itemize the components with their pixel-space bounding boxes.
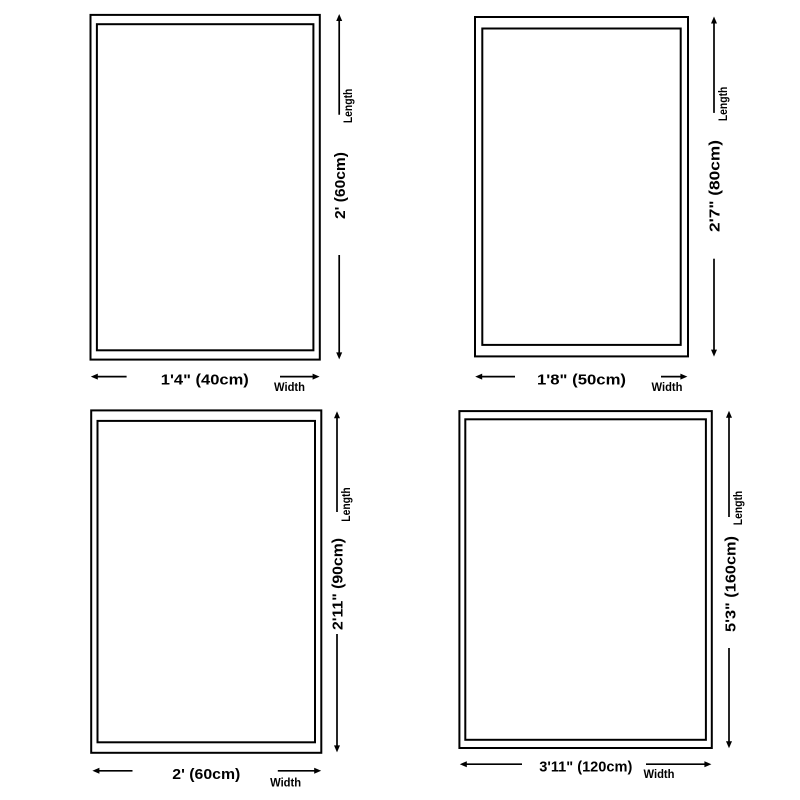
svg-text:Width: Width (644, 767, 675, 781)
svg-text:1'8" (50cm): 1'8" (50cm) (537, 371, 626, 388)
svg-text:Length: Length (731, 491, 745, 526)
svg-text:Length: Length (716, 87, 730, 122)
svg-text:Width: Width (270, 775, 301, 789)
svg-text:2' (60cm): 2' (60cm) (172, 766, 240, 783)
svg-text:1'4" (40cm): 1'4" (40cm) (161, 371, 249, 388)
svg-text:2'11" (90cm): 2'11" (90cm) (330, 538, 347, 630)
svg-text:Width: Width (274, 380, 305, 394)
svg-text:Width: Width (652, 380, 683, 394)
svg-text:2'7" (80cm): 2'7" (80cm) (707, 140, 724, 232)
svg-text:2' (60cm): 2' (60cm) (332, 152, 349, 219)
svg-text:Length: Length (341, 89, 355, 124)
svg-text:5'3" (160cm): 5'3" (160cm) (723, 536, 740, 632)
svg-text:Length: Length (339, 487, 353, 522)
svg-text:3'11" (120cm): 3'11" (120cm) (539, 759, 632, 776)
